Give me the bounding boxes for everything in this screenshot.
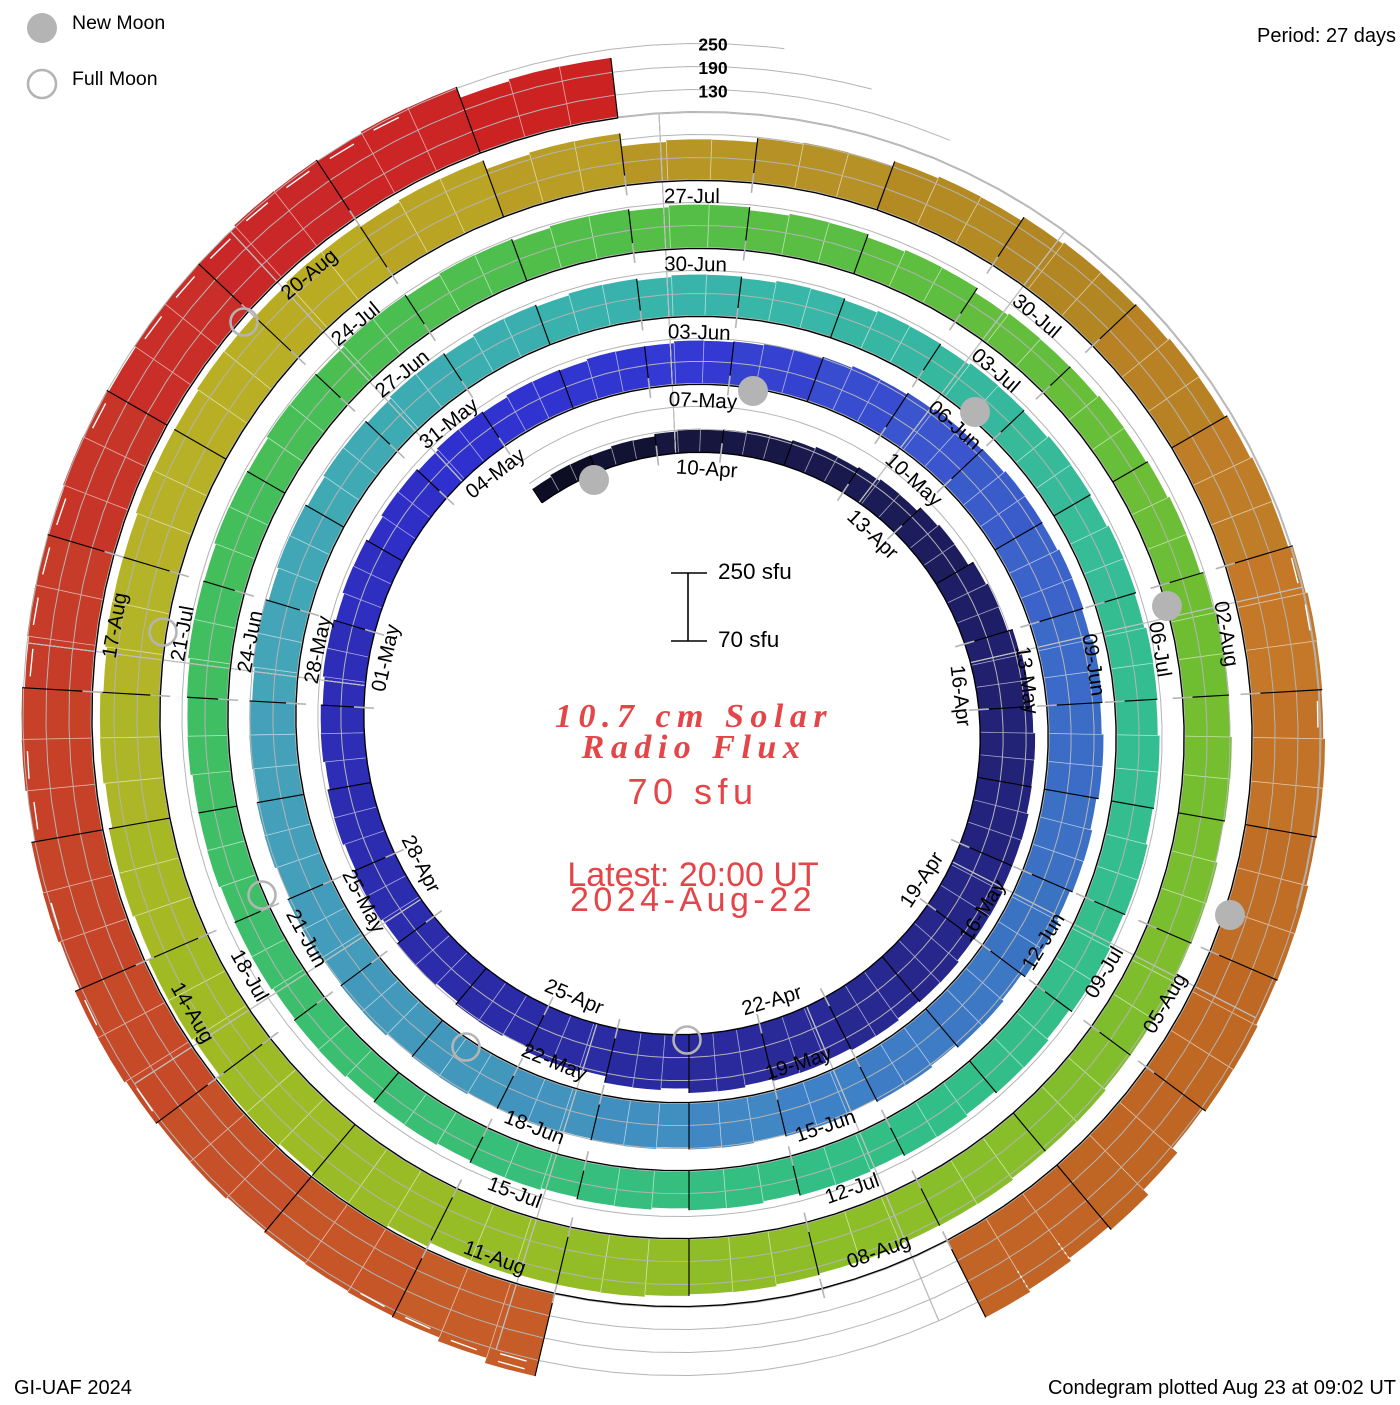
svg-text:190: 190 <box>698 58 727 78</box>
svg-text:Radio Flux: Radio Flux <box>581 729 807 766</box>
svg-text:03-Jun: 03-Jun <box>668 320 731 345</box>
svg-text:Full Moon: Full Moon <box>72 68 158 90</box>
svg-text:GI-UAF 2024: GI-UAF 2024 <box>14 1377 132 1399</box>
svg-text:2024-Aug-22: 2024-Aug-22 <box>570 881 816 919</box>
svg-text:Condegram plotted Aug 23 at 09: Condegram plotted Aug 23 at 09:02 UT <box>1048 1377 1396 1399</box>
svg-text:Period: 27 days: Period: 27 days <box>1257 25 1396 47</box>
svg-text:250: 250 <box>698 35 727 55</box>
svg-text:130: 130 <box>698 82 727 102</box>
svg-text:70 sfu: 70 sfu <box>627 771 758 812</box>
svg-text:10-Apr: 10-Apr <box>675 455 738 482</box>
svg-text:07-May: 07-May <box>668 388 738 414</box>
svg-text:27-Jul: 27-Jul <box>664 185 720 208</box>
svg-text:70 sfu: 70 sfu <box>718 627 779 652</box>
svg-text:250 sfu: 250 sfu <box>718 559 792 584</box>
svg-text:New Moon: New Moon <box>72 12 165 34</box>
svg-text:30-Jun: 30-Jun <box>664 253 727 277</box>
